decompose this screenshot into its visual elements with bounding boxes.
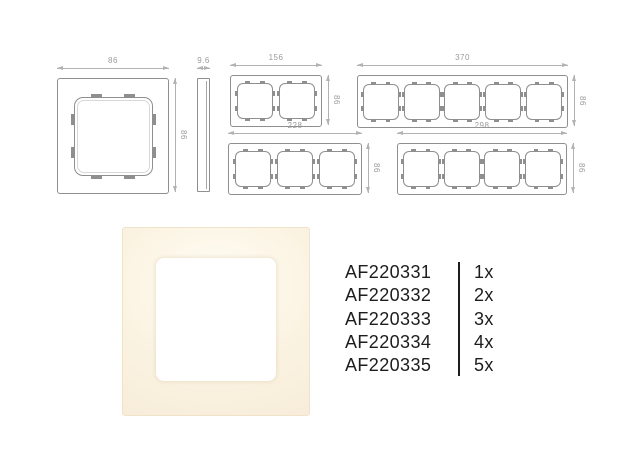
mount-tab [426, 82, 431, 85]
mount-tab [327, 149, 332, 152]
height-dimension-label: 86 [578, 96, 587, 106]
mount-tab [520, 92, 523, 97]
mount-tab [482, 159, 485, 164]
product-qty: 3x [474, 308, 494, 331]
mount-tab [124, 94, 135, 98]
product-qty: 5x [474, 354, 494, 377]
mount-tab [442, 174, 445, 179]
mount-tab [243, 186, 248, 189]
width-dimension-label: 228 [228, 121, 362, 130]
mount-tab [561, 106, 564, 111]
mount-tab [453, 82, 458, 85]
mount-tab [483, 92, 486, 97]
height-dimension-label: 86 [577, 163, 586, 173]
product-qty: 2x [474, 284, 494, 307]
mount-tab [386, 82, 391, 85]
width-dimension-label: 156 [230, 53, 322, 62]
mount-tab [467, 82, 472, 85]
mount-tab [401, 159, 404, 164]
mount-tab [442, 92, 445, 97]
width-dimension: 228 [228, 121, 362, 134]
mount-tab [287, 81, 292, 84]
mount-tab [272, 91, 275, 96]
frame-opening [237, 83, 273, 119]
mount-tab [535, 82, 540, 85]
mount-tab [398, 92, 401, 97]
height-dimension: 86 [368, 143, 382, 193]
mount-tab [275, 159, 278, 164]
mount-tab [411, 149, 416, 152]
frame-opening [484, 151, 520, 187]
frame-opening [403, 151, 439, 187]
product-sku: AF220335 [345, 354, 458, 377]
frame-outline-2gang [230, 75, 322, 127]
depth-dimension: 9.6 [197, 56, 210, 69]
frame-opening [444, 151, 480, 187]
depth-dimension-line [197, 68, 210, 69]
width-dimension-line [357, 65, 568, 66]
height-dimension-label: 86 [179, 130, 188, 140]
frame-opening [277, 151, 313, 187]
height-dimension-line [175, 78, 176, 192]
mount-tab [124, 175, 135, 179]
mount-tab [439, 106, 442, 111]
mount-tab [560, 159, 563, 164]
mount-tab [402, 92, 405, 97]
width-dimension-line [228, 133, 362, 134]
mount-tab [245, 81, 250, 84]
mount-tab [519, 159, 522, 164]
product-qty-column: 1x2x3x4x5x [460, 261, 494, 377]
mount-tab [317, 174, 320, 179]
width-dimension-line [397, 133, 567, 134]
mount-tab [493, 149, 498, 152]
mount-tab [520, 106, 523, 111]
mount-tab [302, 81, 307, 84]
frame-outline-3gang [228, 143, 362, 195]
mount-tab [258, 149, 263, 152]
mount-tab [398, 106, 401, 111]
mount-tab [534, 149, 539, 152]
frame-profile-outline [197, 78, 210, 192]
height-dimension: 86 [328, 75, 342, 125]
mount-tab [361, 92, 364, 97]
mount-tab [452, 149, 457, 152]
mount-tab [401, 174, 404, 179]
mount-tab [482, 174, 485, 179]
product-sheet: 86 86 9.6 156 86 370 [0, 0, 624, 460]
mount-tab [466, 186, 471, 189]
mount-tab [386, 119, 391, 122]
mount-tab [300, 149, 305, 152]
mount-tab [371, 119, 376, 122]
mount-tab [548, 149, 553, 152]
width-dimension: 370 [357, 53, 568, 66]
mount-tab [411, 186, 416, 189]
mount-tab [243, 149, 248, 152]
width-dimension-line [57, 68, 169, 69]
mount-tab [300, 186, 305, 189]
mount-tab [507, 149, 512, 152]
mount-tab [258, 186, 263, 189]
height-dimension: 86 [573, 143, 587, 193]
height-dimension-label: 86 [372, 163, 381, 173]
frame-outline-4gang [397, 143, 567, 195]
mount-tab [312, 159, 315, 164]
frame-opening [485, 84, 521, 120]
product-sku: AF220331 [345, 261, 458, 284]
frame-opening [279, 83, 315, 119]
mount-tab [152, 147, 156, 158]
mount-tab [523, 159, 526, 164]
width-dimension-label: 298 [397, 121, 567, 130]
frame-cutout [156, 258, 276, 381]
mount-tab [524, 106, 527, 111]
product-sku: AF220332 [345, 284, 458, 307]
mount-tab [466, 149, 471, 152]
width-dimension-label: 86 [57, 56, 169, 65]
mount-tab [235, 91, 238, 96]
mount-tab [342, 149, 347, 152]
mount-tab [412, 82, 417, 85]
mount-tab [438, 174, 441, 179]
mount-tab [561, 92, 564, 97]
mount-tab [277, 106, 280, 111]
mount-tab [548, 186, 553, 189]
product-sku: AF220333 [345, 308, 458, 331]
height-dimension: 86 [175, 78, 189, 192]
mount-tab [402, 106, 405, 111]
mount-tab [312, 174, 315, 179]
mount-tab [327, 186, 332, 189]
frame-opening [525, 151, 561, 187]
mount-tab [71, 147, 75, 158]
mount-tab [71, 114, 75, 125]
height-dimension-line [573, 143, 574, 193]
mount-tab [507, 186, 512, 189]
height-dimension: 86 [574, 75, 588, 126]
mount-tab [519, 174, 522, 179]
mount-tab [439, 92, 442, 97]
mount-tab [233, 159, 236, 164]
mount-tab [479, 174, 482, 179]
product-qty: 4x [474, 331, 494, 354]
mount-tab [354, 174, 357, 179]
mount-tab [442, 106, 445, 111]
frame-opening [363, 84, 399, 120]
mount-tab [91, 94, 102, 98]
product-list: AF220331AF220332AF220333AF220334AF220335… [345, 261, 494, 377]
mount-tab [260, 81, 265, 84]
mount-tab [426, 186, 431, 189]
product-qty: 1x [474, 261, 494, 284]
height-dimension-line [368, 143, 369, 193]
mount-tab [371, 82, 376, 85]
mount-tab [317, 159, 320, 164]
mount-tab [523, 174, 526, 179]
mount-tab [426, 149, 431, 152]
mount-tab [342, 186, 347, 189]
width-dimension-label: 370 [357, 53, 568, 62]
mount-tab [285, 186, 290, 189]
height-dimension-label: 86 [332, 95, 341, 105]
frame-opening [74, 97, 153, 176]
width-dimension: 156 [230, 53, 322, 66]
mount-tab [270, 159, 273, 164]
mount-tab [275, 174, 278, 179]
mount-tab [361, 106, 364, 111]
frame-outline-1gang [57, 78, 169, 194]
frame-opening [404, 84, 440, 120]
mount-tab [524, 92, 527, 97]
product-sku-column: AF220331AF220332AF220333AF220334AF220335 [345, 261, 458, 377]
mount-tab [354, 159, 357, 164]
width-dimension-line [230, 65, 322, 66]
mount-tab [152, 114, 156, 125]
mount-tab [272, 106, 275, 111]
mount-tab [493, 186, 498, 189]
mount-tab [233, 174, 236, 179]
mount-tab [270, 174, 273, 179]
frame-opening [235, 151, 271, 187]
mount-tab [494, 82, 499, 85]
mount-tab [285, 149, 290, 152]
mount-tab [452, 186, 457, 189]
frame-opening [444, 84, 480, 120]
mount-tab [314, 91, 317, 96]
mount-tab [549, 82, 554, 85]
width-dimension: 86 [57, 56, 169, 69]
mount-tab [534, 186, 539, 189]
frame-opening [319, 151, 355, 187]
mount-tab [479, 159, 482, 164]
mount-tab [479, 106, 482, 111]
width-dimension: 298 [397, 121, 567, 134]
mount-tab [560, 174, 563, 179]
product-photo-cream-frame [122, 227, 310, 416]
product-sku: AF220334 [345, 331, 458, 354]
mount-tab [277, 91, 280, 96]
height-dimension-line [328, 75, 329, 125]
depth-dimension-label: 9.6 [197, 56, 210, 65]
mount-tab [508, 82, 513, 85]
mount-tab [91, 175, 102, 179]
mount-tab [438, 159, 441, 164]
mount-tab [235, 106, 238, 111]
height-dimension-line [574, 75, 575, 126]
mount-tab [314, 106, 317, 111]
mount-tab [483, 106, 486, 111]
mount-tab [442, 159, 445, 164]
mount-tab [479, 92, 482, 97]
frame-opening [526, 84, 562, 120]
